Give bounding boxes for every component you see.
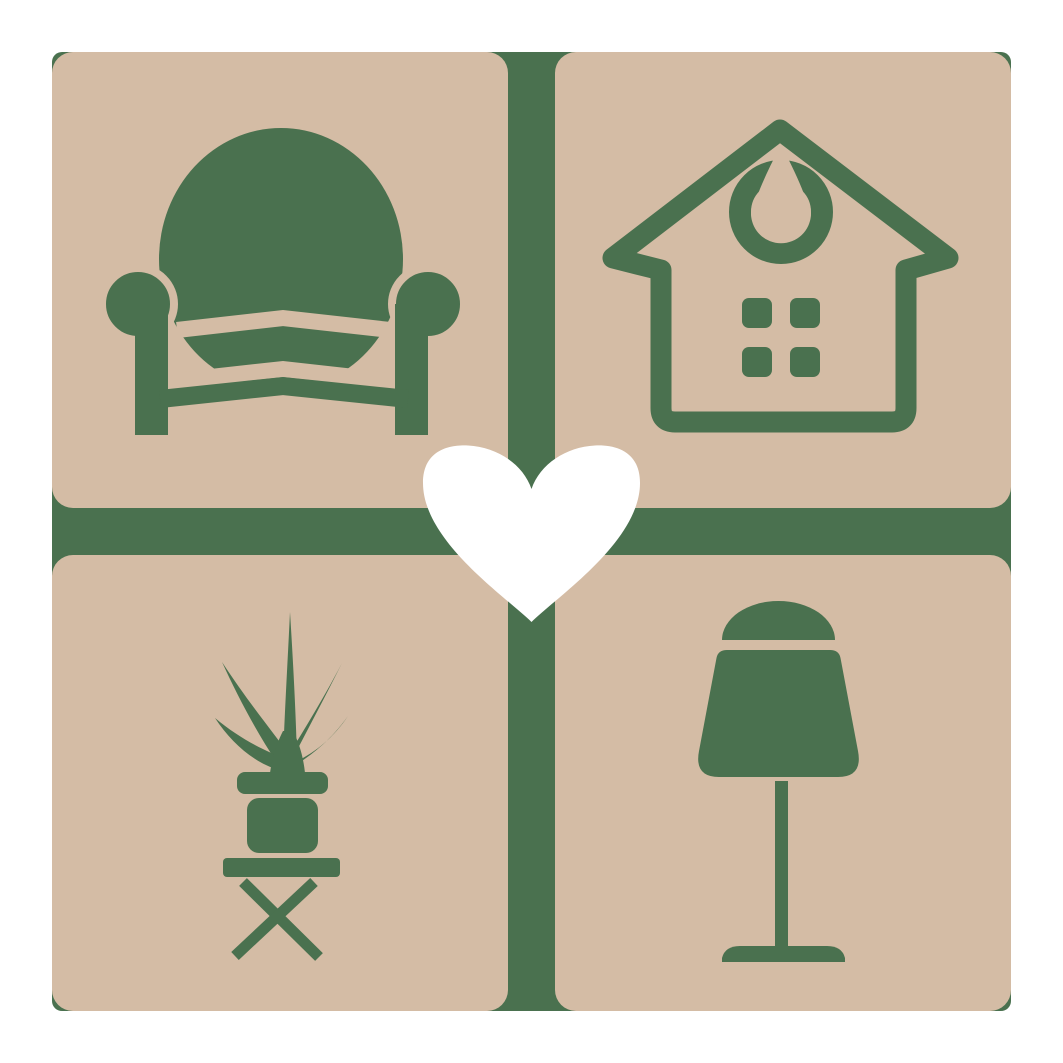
stool-top bbox=[223, 858, 340, 877]
house-window bbox=[790, 347, 820, 377]
house-window bbox=[742, 347, 772, 377]
house-window bbox=[742, 298, 772, 328]
chair-leg-left bbox=[135, 304, 168, 435]
logo-canvas bbox=[0, 0, 1063, 1063]
plant-pot-body bbox=[247, 798, 318, 853]
chair-lower-mask bbox=[152, 396, 414, 472]
lamp-base bbox=[722, 946, 845, 962]
plant-pot-rim bbox=[237, 772, 328, 794]
house-window bbox=[790, 298, 820, 328]
chair-leg-right bbox=[395, 304, 428, 435]
chair-backrest bbox=[159, 128, 403, 390]
lamp-stem bbox=[775, 781, 788, 949]
logo bbox=[0, 0, 1063, 1063]
lamp-shade bbox=[698, 650, 859, 777]
